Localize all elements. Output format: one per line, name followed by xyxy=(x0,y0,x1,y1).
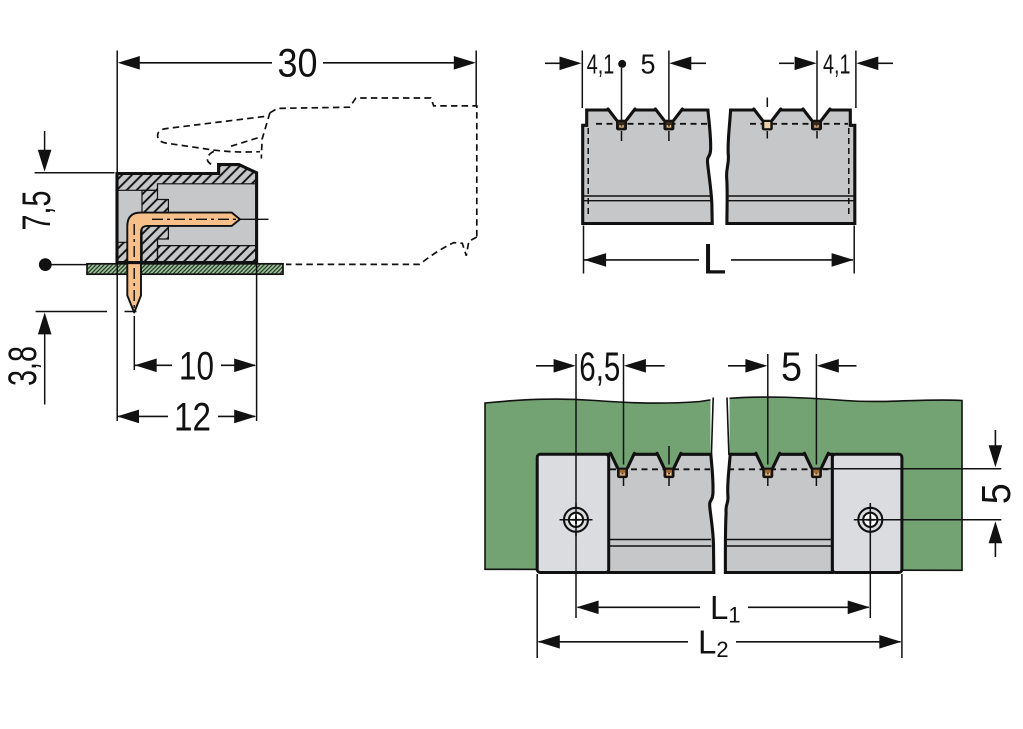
svg-text:5: 5 xyxy=(973,483,1019,504)
svg-text:4,1: 4,1 xyxy=(587,48,615,79)
svg-text:L: L xyxy=(703,236,727,284)
svg-text:5: 5 xyxy=(641,48,656,79)
svg-text:4,1: 4,1 xyxy=(823,48,851,79)
svg-text:30: 30 xyxy=(278,42,318,86)
svg-text:7,5: 7,5 xyxy=(15,191,59,231)
svg-text:12: 12 xyxy=(174,395,211,439)
svg-text:10: 10 xyxy=(179,344,214,388)
svg-text:3,8: 3,8 xyxy=(1,346,45,386)
svg-text:5: 5 xyxy=(781,344,802,390)
svg-text:6,5: 6,5 xyxy=(579,344,620,390)
